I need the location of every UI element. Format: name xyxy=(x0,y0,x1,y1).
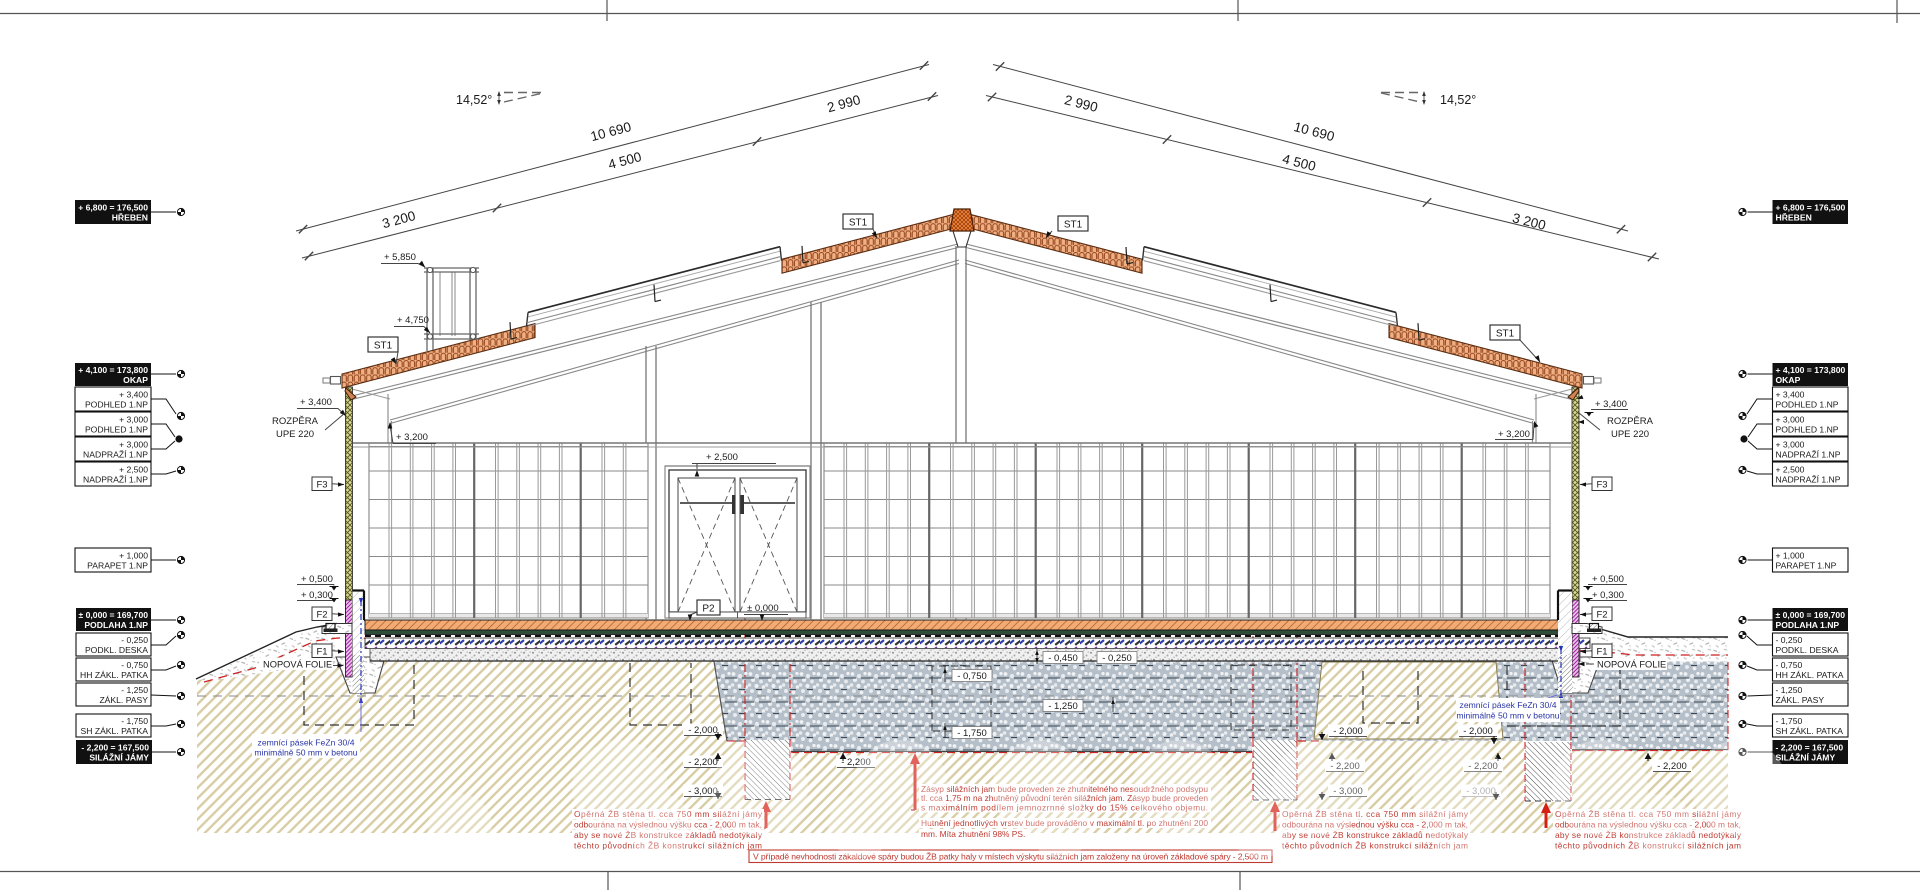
svg-text:NOPOVÁ FOLIE: NOPOVÁ FOLIE xyxy=(1597,660,1666,670)
svg-text:PARAPET 1.NP: PARAPET 1.NP xyxy=(87,561,148,571)
svg-text:+ 3,400: + 3,400 xyxy=(1776,390,1805,400)
svg-text:- 0,250: - 0,250 xyxy=(1102,653,1132,664)
svg-text:- 2,200 = 167,500: - 2,200 = 167,500 xyxy=(81,743,149,753)
svg-text:+ 3,000: + 3,000 xyxy=(1776,440,1805,450)
svg-text:PODLAHA 1.NP: PODLAHA 1.NP xyxy=(1776,620,1840,630)
svg-text:- 0,250: - 0,250 xyxy=(121,635,148,645)
svg-text:mm. Míta zhutnění 98% PS.: mm. Míta zhutnění 98% PS. xyxy=(921,829,1025,839)
svg-text:- 2,200: - 2,200 xyxy=(688,757,718,768)
svg-text:+ 0,300: + 0,300 xyxy=(1592,590,1624,601)
svg-text:zemnící pásek FeZn 30/4: zemnící pásek FeZn 30/4 xyxy=(1460,700,1557,710)
svg-text:F2: F2 xyxy=(316,610,327,621)
svg-text:14,52°: 14,52° xyxy=(456,93,492,107)
svg-text:minimálně 50 mm v betonu: minimálně 50 mm v betonu xyxy=(254,748,357,758)
svg-text:HŘEBEN: HŘEBEN xyxy=(1776,212,1812,223)
svg-text:- 2,000: - 2,000 xyxy=(1463,726,1493,737)
svg-text:+ 3,400: + 3,400 xyxy=(119,390,148,400)
svg-text:SILÁŽNÍ JÁMY: SILÁŽNÍ JÁMY xyxy=(1776,752,1836,763)
svg-text:+ 3,200: + 3,200 xyxy=(396,432,428,443)
svg-text:F3: F3 xyxy=(1596,480,1607,491)
svg-text:- 2,200: - 2,200 xyxy=(1657,761,1687,772)
svg-text:NOPOVÁ FOLIE: NOPOVÁ FOLIE xyxy=(263,660,332,670)
svg-text:- 0,750: - 0,750 xyxy=(121,660,148,670)
svg-text:- 1,750: - 1,750 xyxy=(121,716,148,726)
svg-text:+ 3,000: + 3,000 xyxy=(1776,415,1805,425)
svg-text:OKAP: OKAP xyxy=(123,375,148,385)
svg-text:ST1: ST1 xyxy=(374,341,393,352)
svg-text:SILÁŽNÍ JÁMY: SILÁŽNÍ JÁMY xyxy=(89,752,149,763)
svg-text:- 0,450: - 0,450 xyxy=(1048,653,1078,664)
svg-text:F1: F1 xyxy=(1596,647,1607,658)
svg-text:zemnící pásek FeZn 30/4: zemnící pásek FeZn 30/4 xyxy=(258,738,355,748)
svg-text:+ 0,300: + 0,300 xyxy=(301,590,333,601)
svg-text:± 0,000 = 169,700: ± 0,000 = 169,700 xyxy=(79,610,149,620)
svg-text:ZÁKL. PASY: ZÁKL. PASY xyxy=(1776,695,1825,705)
svg-text:+ 3,000: + 3,000 xyxy=(119,440,148,450)
svg-text:- 2,000: - 2,000 xyxy=(688,725,718,736)
svg-text:- 0,750: - 0,750 xyxy=(1776,660,1803,670)
svg-text:- 1,250: - 1,250 xyxy=(1776,685,1803,695)
svg-text:+ 2,500: + 2,500 xyxy=(1776,465,1805,475)
svg-text:ST1: ST1 xyxy=(1064,220,1083,231)
svg-text:+ 3,400: + 3,400 xyxy=(300,397,332,408)
svg-text:- 1,250: - 1,250 xyxy=(121,685,148,695)
svg-text:+ 3,000: + 3,000 xyxy=(119,415,148,425)
svg-text:PODHLED 1.NP: PODHLED 1.NP xyxy=(85,400,148,410)
svg-text:+ 4,100 = 173,800: + 4,100 = 173,800 xyxy=(1776,365,1846,375)
svg-text:ROZPĚRA: ROZPĚRA xyxy=(272,416,319,427)
svg-text:ST1: ST1 xyxy=(1496,329,1515,340)
svg-text:- 1,250: - 1,250 xyxy=(1048,701,1078,712)
svg-text:ROZPĚRA: ROZPĚRA xyxy=(1607,416,1654,427)
svg-text:NADPRAŽÍ 1.NP: NADPRAŽÍ 1.NP xyxy=(83,475,148,485)
svg-text:14,52°: 14,52° xyxy=(1440,93,1476,107)
svg-text:- 2,200 = 167,500: - 2,200 = 167,500 xyxy=(1776,743,1844,753)
svg-text:F3: F3 xyxy=(316,480,327,491)
svg-text:+ 4,100 = 173,800: + 4,100 = 173,800 xyxy=(78,365,148,375)
svg-text:PARAPET 1.NP: PARAPET 1.NP xyxy=(1776,561,1837,571)
svg-text:- 2,000: - 2,000 xyxy=(1333,726,1363,737)
svg-text:P2: P2 xyxy=(702,604,715,615)
svg-text:PODKL. DESKA: PODKL. DESKA xyxy=(1776,645,1839,655)
svg-text:PODLAHA 1.NP: PODLAHA 1.NP xyxy=(84,620,148,630)
svg-text:- 0,750: - 0,750 xyxy=(957,671,987,682)
svg-text:PODHLED 1.NP: PODHLED 1.NP xyxy=(1776,425,1839,435)
svg-text:PODHLED 1.NP: PODHLED 1.NP xyxy=(85,425,148,435)
svg-text:+ 5,850: + 5,850 xyxy=(384,252,416,263)
svg-text:± 0,000: ± 0,000 xyxy=(747,603,779,614)
svg-text:UPE 220: UPE 220 xyxy=(1611,429,1649,440)
svg-text:- 1,750: - 1,750 xyxy=(1776,716,1803,726)
svg-text:- 0,250: - 0,250 xyxy=(1776,635,1803,645)
svg-text:+ 3,200: + 3,200 xyxy=(1498,429,1530,440)
svg-text:+ 1,000: + 1,000 xyxy=(1776,551,1805,561)
svg-text:NADPRAŽÍ 1.NP: NADPRAŽÍ 1.NP xyxy=(1776,450,1841,460)
svg-text:+ 1,000: + 1,000 xyxy=(119,551,148,561)
svg-text:- 1,750: - 1,750 xyxy=(957,728,987,739)
svg-text:SH ZÁKL. PATKA: SH ZÁKL. PATKA xyxy=(81,726,149,736)
svg-text:UPE 220: UPE 220 xyxy=(276,429,314,440)
svg-text:HŘEBEN: HŘEBEN xyxy=(112,212,148,223)
svg-text:V případě nevhodnosti zákaldov: V případě nevhodnosti zákaldové spáry bu… xyxy=(753,852,1268,862)
svg-text:HH ZÁKL. PATKA: HH ZÁKL. PATKA xyxy=(1776,670,1844,680)
svg-text:+ 3,400: + 3,400 xyxy=(1595,399,1627,410)
svg-text:+ 6,800 = 176,500: + 6,800 = 176,500 xyxy=(1776,203,1846,213)
svg-text:F2: F2 xyxy=(1596,610,1607,621)
svg-text:+ 0,500: + 0,500 xyxy=(301,574,333,585)
svg-text:NADPRAŽÍ 1.NP: NADPRAŽÍ 1.NP xyxy=(1776,475,1841,485)
svg-text:+ 6,800 = 176,500: + 6,800 = 176,500 xyxy=(78,203,148,213)
svg-text:+ 0,500: + 0,500 xyxy=(1592,574,1624,585)
svg-text:ZÁKL. PASY: ZÁKL. PASY xyxy=(99,695,148,705)
svg-text:PODHLED 1.NP: PODHLED 1.NP xyxy=(1776,400,1839,410)
svg-text:+ 2,500: + 2,500 xyxy=(706,452,738,463)
svg-text:± 0,000 = 169,700: ± 0,000 = 169,700 xyxy=(1776,610,1846,620)
svg-text:PODKL. DESKA: PODKL. DESKA xyxy=(85,645,148,655)
svg-text:minimálně 50 mm v betonu: minimálně 50 mm v betonu xyxy=(1456,711,1559,721)
svg-text:ST1: ST1 xyxy=(849,218,868,229)
svg-text:OKAP: OKAP xyxy=(1776,375,1801,385)
svg-text:SH ZÁKL. PATKA: SH ZÁKL. PATKA xyxy=(1776,726,1844,736)
svg-text:HH ZÁKL. PATKA: HH ZÁKL. PATKA xyxy=(80,670,148,680)
svg-text:+ 4,750: + 4,750 xyxy=(397,315,429,326)
svg-text:+ 2,500: + 2,500 xyxy=(119,465,148,475)
svg-text:F1: F1 xyxy=(316,647,327,658)
svg-text:NADPRAŽÍ 1.NP: NADPRAŽÍ 1.NP xyxy=(83,450,148,460)
